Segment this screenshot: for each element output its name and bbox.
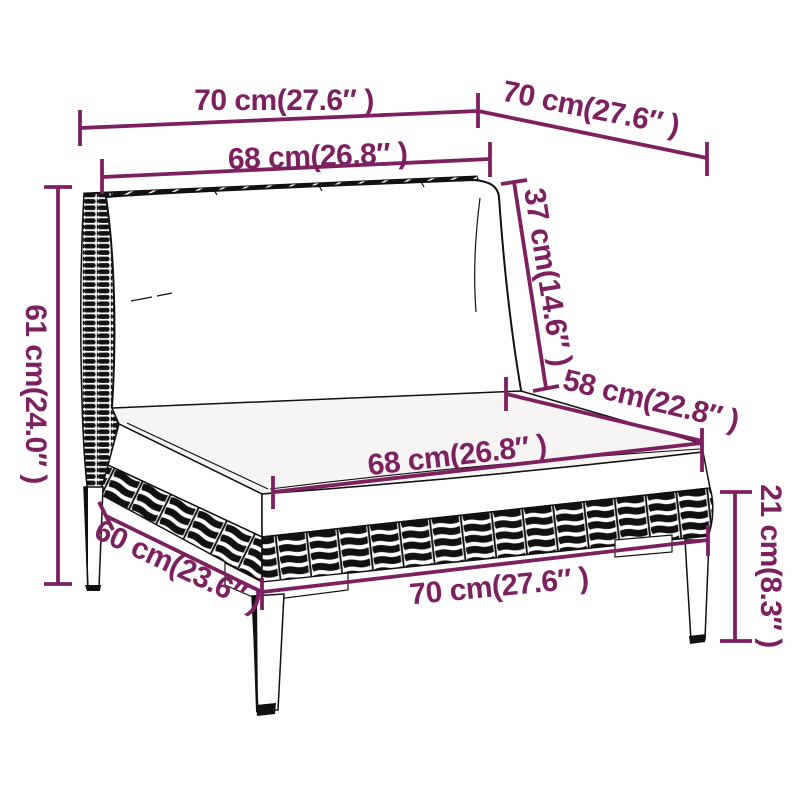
svg-text:70 cm(27.6″ ): 70 cm(27.6″ ) bbox=[194, 84, 374, 117]
svg-text:21 cm(8.3″ ): 21 cm(8.3″ ) bbox=[754, 484, 787, 647]
svg-text:68 cm(26.8″ ): 68 cm(26.8″ ) bbox=[227, 137, 408, 176]
svg-text:61 cm(24.0″ ): 61 cm(24.0″ ) bbox=[19, 304, 52, 484]
